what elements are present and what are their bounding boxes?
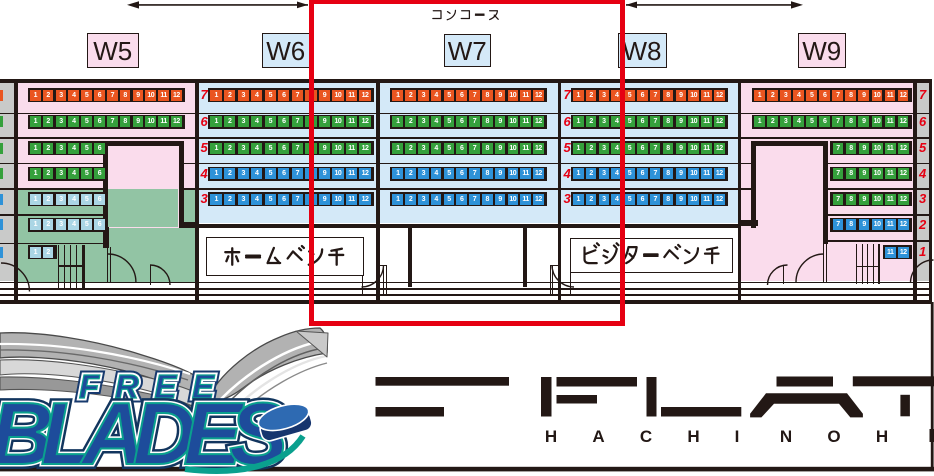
- svg-text:H: H: [876, 427, 888, 446]
- svg-text:N: N: [780, 427, 792, 446]
- svg-text:H: H: [545, 427, 557, 446]
- svg-text:BLADES: BLADES: [0, 384, 288, 476]
- svg-text:I: I: [735, 427, 740, 446]
- svg-text:A: A: [592, 427, 604, 446]
- svg-text:O: O: [827, 427, 840, 446]
- svg-text:H: H: [687, 427, 699, 446]
- svg-text:C: C: [640, 427, 652, 446]
